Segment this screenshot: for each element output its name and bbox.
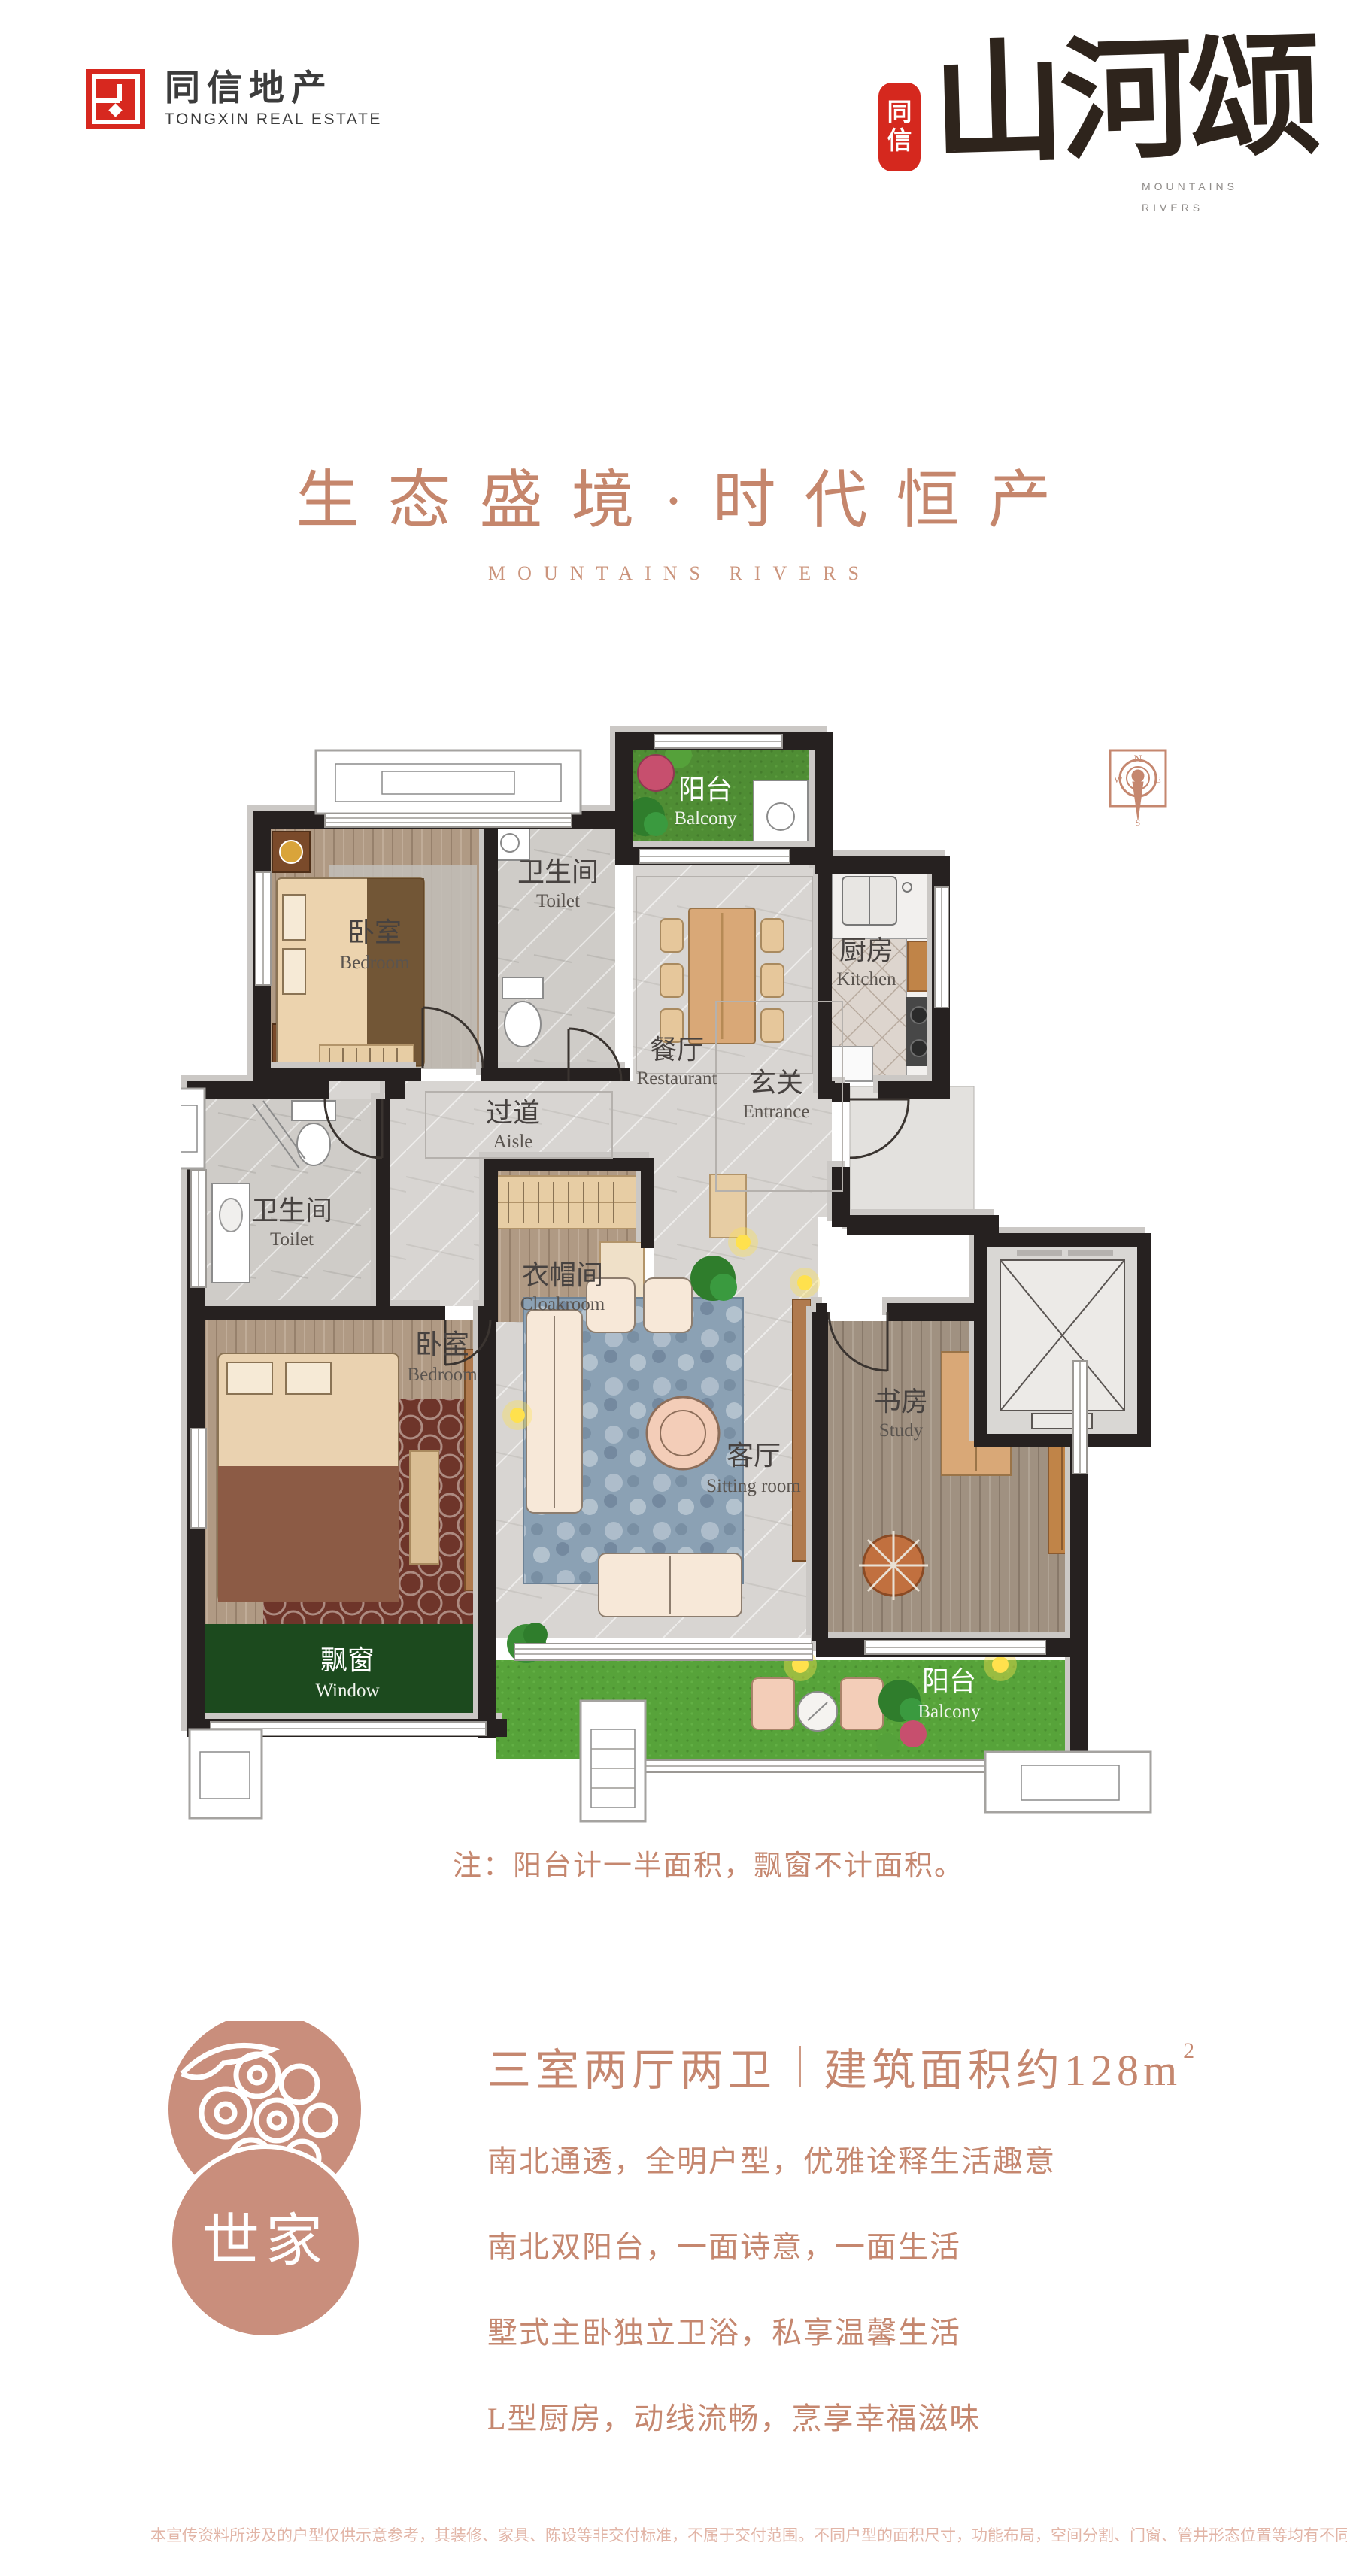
footer-disclaimer: 本宣传资料所涉及的户型仅供示意参考，其装修、家具、陈设等非交付标准，不属于交付范… xyxy=(150,2523,1347,2546)
svg-text:S: S xyxy=(1136,817,1141,828)
label-balcony-top-zh: 阳台 xyxy=(678,774,733,805)
toilet-2-fixture xyxy=(297,1123,330,1165)
brand-en-line1: MOUNTAINS xyxy=(1142,180,1238,192)
balcony-chair-1 xyxy=(752,1678,794,1729)
label-entrance-zh: 玄关 xyxy=(749,1068,803,1098)
feature-item-4: L型厨房，动线流畅，烹享幸福滋味 xyxy=(487,2394,1056,2438)
hero-subtitle: MOUNTAINS RIVERS xyxy=(0,562,1347,585)
equipment-platform xyxy=(581,1701,645,1821)
spec-area: 建筑面积约128m xyxy=(824,2035,1182,2098)
svg-text:W: W xyxy=(1114,774,1123,785)
label-restaurant-zh: 餐厅 xyxy=(650,1035,704,1065)
tv-console xyxy=(793,1299,811,1561)
label-cloakroom-zh: 衣帽间 xyxy=(522,1260,603,1290)
label-bedroom1-en: Bedroom xyxy=(339,953,410,973)
label-bedroom2-en: Bedroom xyxy=(407,1365,478,1385)
balcony-chair-2 xyxy=(841,1678,883,1729)
spec-area-superscript: 2 xyxy=(1183,2038,1194,2064)
label-toilet2-en: Toilet xyxy=(270,1229,314,1250)
tongxin-logo-mark-icon xyxy=(86,69,145,129)
wardrobe-1 xyxy=(320,1045,414,1069)
label-cloakroom-en: Cloakroom xyxy=(520,1294,605,1314)
brand-en-line2: RIVERS xyxy=(1142,202,1203,214)
compass-icon: N W E S xyxy=(1110,750,1166,828)
floor-plan: 卧室 Bedroom 卫生间 Toilet 阳台 Balcony 餐厅 Rest… xyxy=(181,699,1181,1842)
label-toilet1-en: Toilet xyxy=(536,891,580,911)
spec-rooms: 三室两厅两卫 xyxy=(487,2035,776,2098)
label-sitting-zh: 客厅 xyxy=(727,1441,781,1471)
label-toilet2-zh: 卫生间 xyxy=(251,1196,332,1226)
seal-char-1: 同 xyxy=(887,99,912,126)
label-restaurant-en: Restaurant xyxy=(637,1068,717,1089)
emblem-label: 世家 xyxy=(202,2210,329,2273)
label-aisle-zh: 过道 xyxy=(486,1098,540,1128)
label-sitting-en: Sitting room xyxy=(706,1476,801,1496)
header-logo: 同信地产 TONGXIN REAL ESTATE xyxy=(86,69,382,129)
brand-seal: 同 信 xyxy=(878,83,921,171)
feature-item-1: 南北通透，全明户型，优雅诠释生活趣意 xyxy=(487,2137,1056,2181)
label-entrance-en: Entrance xyxy=(743,1102,810,1122)
label-kitchen-en: Kitchen xyxy=(836,969,896,989)
poster-page: 同信地产 TONGXIN REAL ESTATE 同 信 山河颂 MOUNTAI… xyxy=(0,0,1347,2576)
logo-name: 同信地产 xyxy=(165,69,382,106)
plan-note: 注：阳台计一半面积，飘窗不计面积。 xyxy=(453,1842,964,1884)
brand-calligraphy: 山河颂 xyxy=(931,31,1318,173)
feature-item-3: 墅式主卧独立卫浴，私享温馨生活 xyxy=(487,2308,1056,2352)
label-study-en: Study xyxy=(879,1420,924,1441)
washing-machine xyxy=(754,780,808,851)
hero-title: 生态盛境·时代恒产 xyxy=(0,450,1347,541)
feature-item-2: 南北双阳台，一面诗意，一面生活 xyxy=(487,2223,1056,2266)
label-bedroom1-zh: 卧室 xyxy=(347,917,402,947)
svg-text:N: N xyxy=(1134,753,1142,765)
label-aisle-en: Aisle xyxy=(493,1132,533,1152)
coffee-table xyxy=(647,1397,719,1469)
feature-list: 南北通透，全明户型，优雅诠释生活趣意 南北双阳台，一面诗意，一面生活 墅式主卧独… xyxy=(487,2137,1056,2480)
logo-subtitle: TONGXIN REAL ESTATE xyxy=(165,111,382,129)
svg-text:E: E xyxy=(1155,774,1160,785)
bedroom1-bay-window xyxy=(316,750,581,814)
spec-line: 三室两厅两卫 建筑面积约128m 2 xyxy=(487,2035,1194,2098)
label-study-zh: 书房 xyxy=(874,1386,928,1417)
label-bay-window-en: Window xyxy=(315,1680,379,1701)
label-balcony-bottom-zh: 阳台 xyxy=(922,1666,976,1696)
elevator-core xyxy=(987,1247,1137,1434)
floor-landing xyxy=(850,1086,974,1218)
label-bay-window-zh: 飘窗 xyxy=(320,1645,375,1675)
label-balcony-top-en: Balcony xyxy=(674,808,737,829)
label-bedroom2-zh: 卧室 xyxy=(415,1329,469,1359)
toilet-1-fixture xyxy=(502,977,543,999)
label-kitchen-zh: 厨房 xyxy=(839,935,893,965)
seal-char-2: 信 xyxy=(887,128,912,155)
study-bay-window xyxy=(985,1752,1151,1812)
emblem-icon: 世家 xyxy=(167,2021,364,2338)
label-balcony-bottom-en: Balcony xyxy=(918,1702,981,1722)
label-toilet1-zh: 卫生间 xyxy=(517,857,599,887)
spec-divider xyxy=(799,2046,801,2087)
